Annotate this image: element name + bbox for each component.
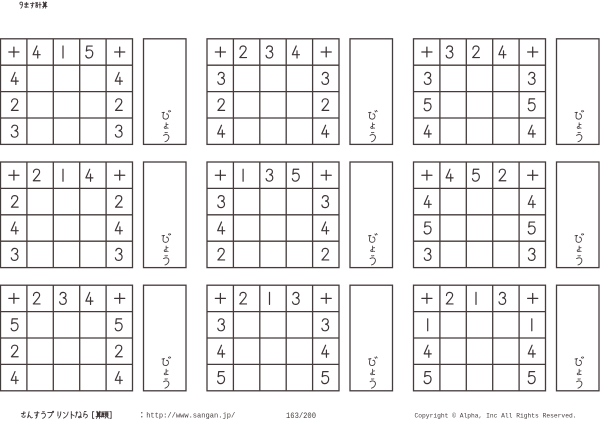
svg-text:163/200: 163/200 bbox=[286, 411, 316, 421]
svg-text:Copyright © Alpha, Inc All Rig: Copyright © Alpha, Inc All Rights Reserv… bbox=[415, 412, 577, 420]
svg-text:http://www.sangan.jp/: http://www.sangan.jp/ bbox=[146, 413, 236, 421]
